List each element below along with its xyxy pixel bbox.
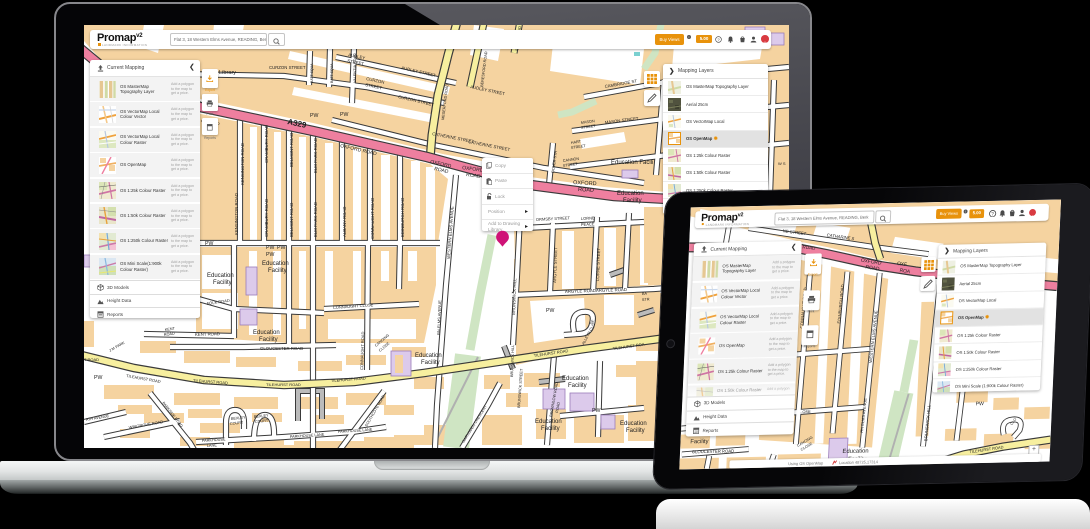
svg-text:?: ? [717,37,720,42]
svg-text:?: ? [991,211,994,216]
